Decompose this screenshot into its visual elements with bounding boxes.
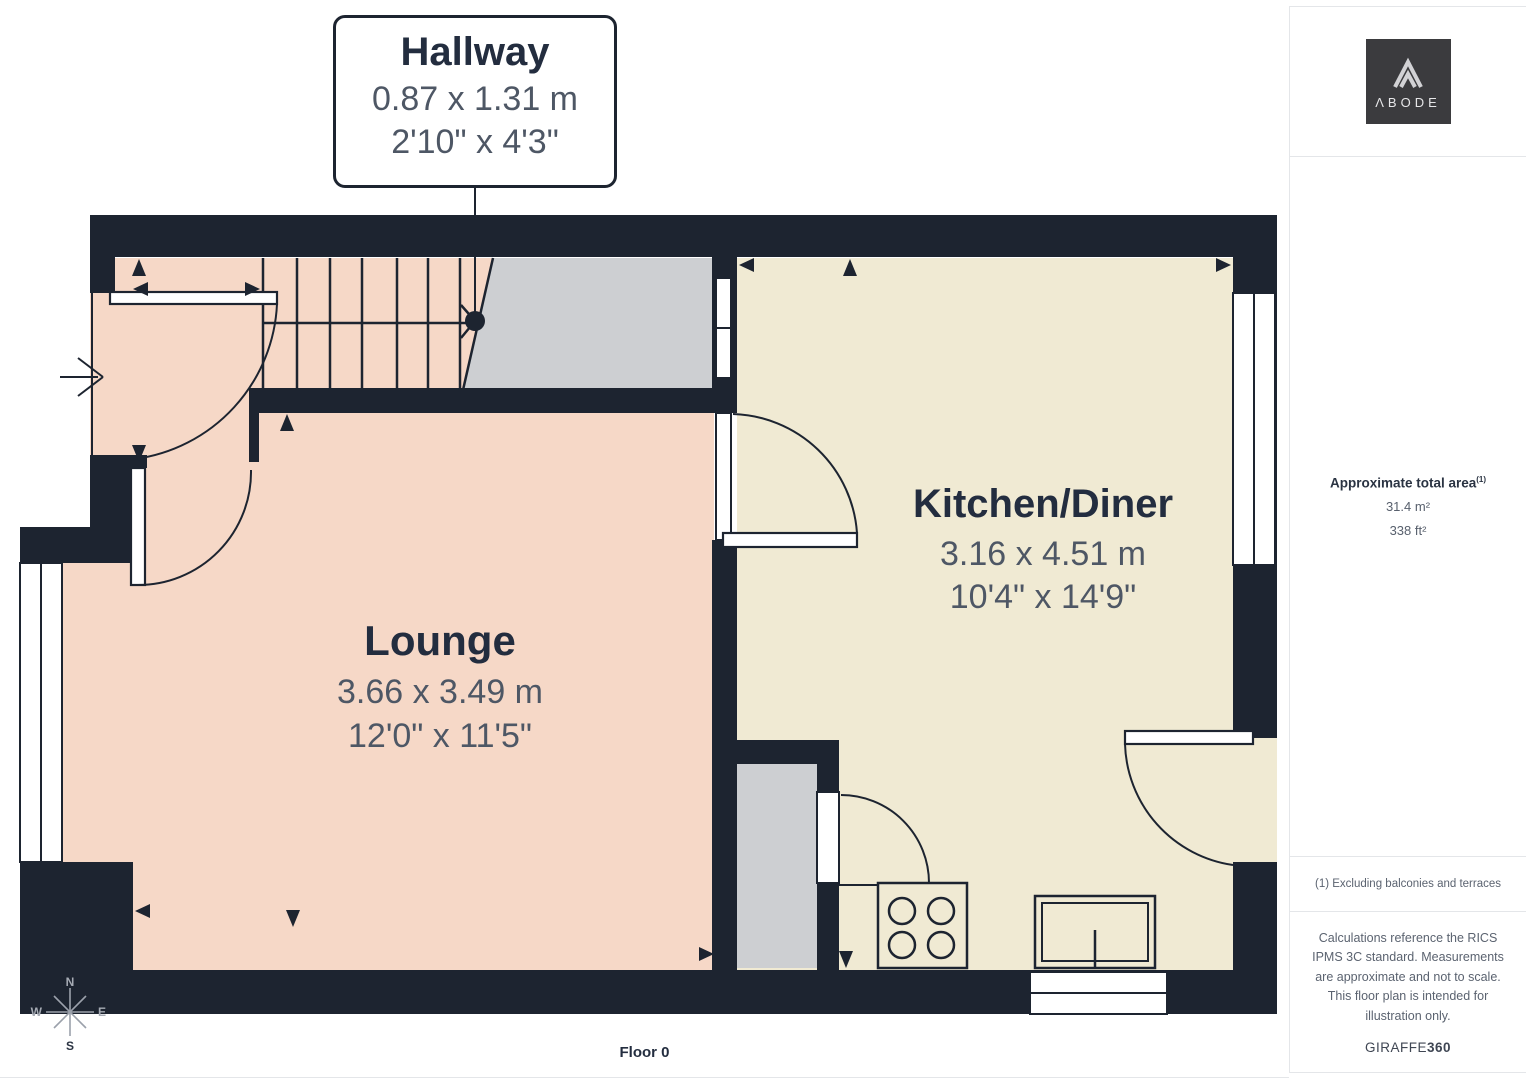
logo-section: ΛBODE	[1289, 6, 1526, 157]
bay-top-wall	[20, 527, 133, 563]
bay-bottom-wall	[20, 862, 133, 898]
kitchen-right-window	[1233, 293, 1275, 565]
compass-north: N	[66, 975, 75, 989]
floor-plan-page: N S W E Hallway 0.87 x 1.31 m 2'10" x 4'…	[0, 0, 1527, 1080]
left-wall-upper	[90, 215, 115, 293]
abode-logo: ΛBODE	[1366, 39, 1451, 124]
brand-name: GIRAFFE	[1365, 1040, 1427, 1055]
total-area-section: Approximate total area(1) 31.4 m² 338 ft…	[1289, 157, 1526, 857]
closet-right-wall-upper	[817, 764, 839, 792]
abode-logo-text: ΛBODE	[1375, 95, 1441, 110]
lounge-door-jamb	[249, 413, 259, 462]
bay-floor	[62, 563, 133, 862]
hallway-callout-imperial: 2'10" x 4'3"	[336, 121, 614, 164]
closet-left-wall	[712, 745, 737, 970]
total-area-superscript: (1)	[1476, 475, 1486, 484]
compass-east: E	[98, 1005, 106, 1019]
floor-label: Floor 0	[0, 1044, 1289, 1061]
top-wall	[90, 215, 1277, 257]
closet-right-wall-lower	[817, 883, 839, 970]
kitchen-bottom-window	[1030, 972, 1167, 1014]
floors	[62, 258, 1233, 970]
landing-window	[716, 278, 731, 378]
hallway-callout-metric: 0.87 x 1.31 m	[336, 78, 614, 121]
info-sidebar: ΛBODE Approximate total area(1) 31.4 m² …	[1289, 0, 1527, 1080]
hallway-callout-title: Hallway	[336, 30, 614, 74]
floor-plan-canvas: N S W E Hallway 0.87 x 1.31 m 2'10" x 4'…	[0, 0, 1289, 1080]
understair-wall	[249, 388, 737, 413]
disclaimer-section: Calculations reference the RICS IPMS 3C …	[1289, 912, 1526, 1073]
giraffe360-brand: GIRAFFE360	[1365, 1040, 1451, 1055]
compass-west: W	[31, 1005, 43, 1019]
page-bottom-divider	[0, 1077, 1289, 1078]
total-area-metric: 31.4 m²	[1386, 499, 1430, 514]
bay-window	[20, 563, 62, 862]
disclaimer-text: Calculations reference the RICS IPMS 3C …	[1310, 929, 1506, 1026]
kitchen-left-wall-lower	[712, 540, 737, 745]
brand-suffix: 360	[1427, 1040, 1451, 1055]
hallway-callout: Hallway 0.87 x 1.31 m 2'10" x 4'3"	[333, 15, 617, 188]
closet-floor	[737, 764, 817, 968]
stair-landing	[463, 258, 714, 390]
total-area-title: Approximate total area(1)	[1330, 475, 1486, 491]
floor-plan-svg: N S W E	[0, 0, 1289, 1080]
abode-logo-icon	[1380, 54, 1436, 90]
footnote-text: (1) Excluding balconies and terraces	[1315, 878, 1501, 890]
total-area-title-text: Approximate total area	[1330, 475, 1476, 490]
total-area-imperial: 338 ft²	[1390, 523, 1427, 538]
footnote-section: (1) Excluding balconies and terraces	[1289, 857, 1526, 912]
